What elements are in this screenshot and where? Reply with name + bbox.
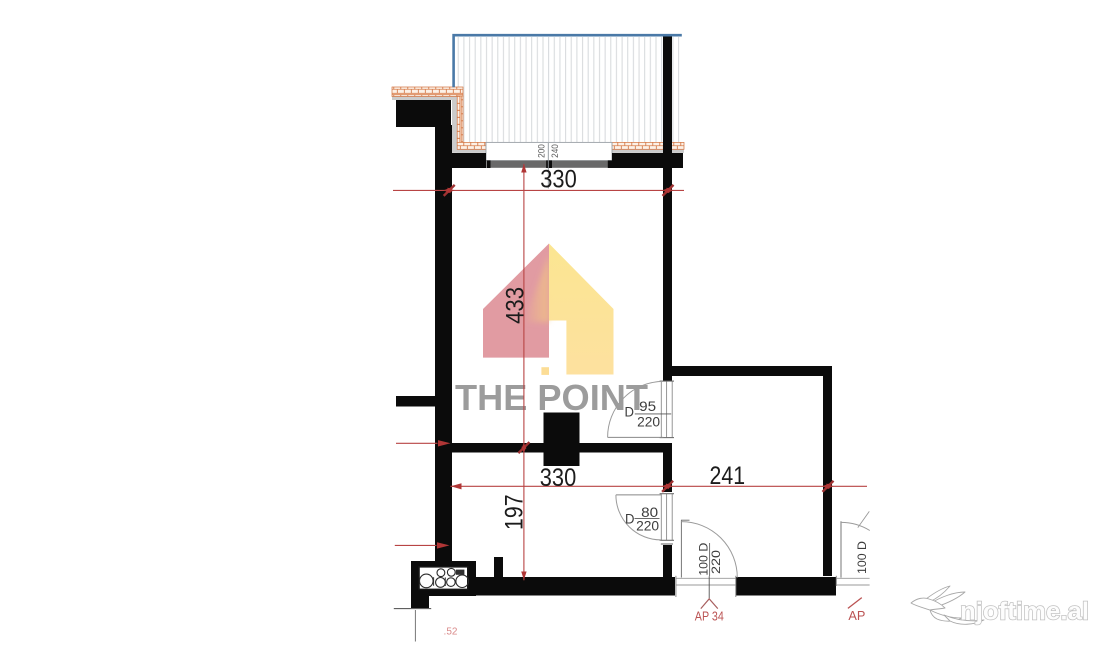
svg-text:220: 220 [709,550,723,574]
svg-text:D: D [625,511,635,526]
svg-text:D: D [624,405,634,420]
svg-text:.52: .52 [444,627,458,638]
svg-text:AP: AP [848,608,865,623]
svg-text:njoftime.al: njoftime.al [960,598,1089,626]
svg-text:220: 220 [636,518,659,533]
svg-text:100 D: 100 D [855,541,869,574]
svg-text:AP 34: AP 34 [695,608,724,623]
svg-text:95: 95 [639,399,656,414]
svg-text:200: 200 [536,144,546,158]
svg-text:433: 433 [502,287,530,324]
svg-text:THE POINT: THE POINT [455,377,648,418]
svg-text:241: 241 [710,462,746,490]
svg-text:197: 197 [500,494,528,530]
svg-text:220: 220 [637,414,660,429]
svg-text:330: 330 [540,165,577,193]
svg-text:240: 240 [550,144,560,158]
svg-text:330: 330 [540,464,577,492]
